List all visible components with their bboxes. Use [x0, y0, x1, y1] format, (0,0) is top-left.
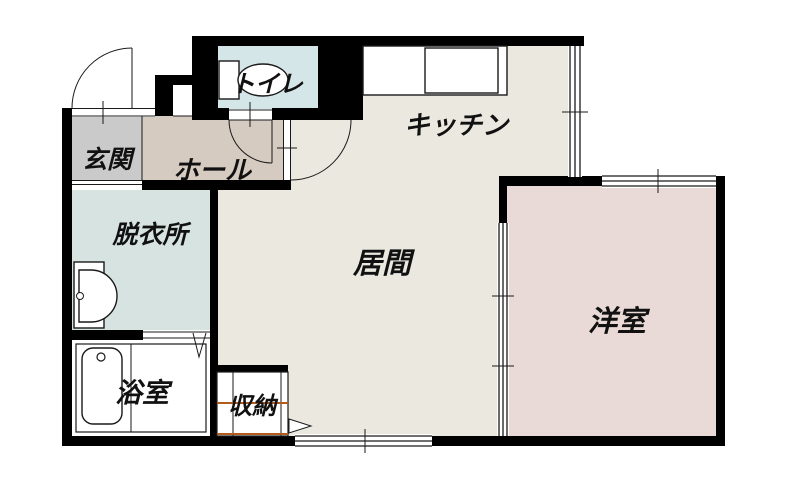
wall-top — [192, 36, 584, 46]
wall-closet-top — [210, 365, 288, 372]
floor-plan-svg: 玄関 ホール トイレ キッチン 脱衣所 居間 洋室 浴室 収納 — [0, 0, 785, 502]
wall-bottom-right — [432, 436, 725, 446]
wall-left — [62, 108, 72, 446]
wall-yoshitsu-top — [499, 176, 602, 186]
room-label-shuno: 収納 — [228, 391, 279, 420]
wall-toilet-bottom-left — [192, 108, 229, 120]
room-label-yokushitsu: 浴室 — [115, 378, 173, 409]
wall-yoshitsu-right — [716, 176, 725, 446]
room-label-datsuijo: 脱衣所 — [111, 220, 191, 249]
room-label-hall: ホール — [173, 156, 253, 186]
room-label-yoshitsu: 洋室 — [588, 304, 651, 338]
floor-plan-page: 玄関 ホール トイレ キッチン 脱衣所 居間 洋室 浴室 収納 — [0, 0, 785, 502]
bathtub-drain — [97, 353, 105, 361]
wall-bath-divider — [62, 330, 143, 340]
washbasin-faucet — [77, 293, 84, 300]
kitchen-counter — [363, 46, 507, 95]
door-swing-arc — [72, 48, 132, 108]
wall-toilet-right-block — [318, 36, 363, 120]
wall-bottom-left — [62, 436, 295, 446]
wall-toilet-left — [192, 36, 218, 120]
door-entrance — [72, 48, 155, 124]
room-label-toilet: トイレ — [231, 69, 304, 98]
room-label-ima: 居間 — [352, 246, 415, 280]
room-label-kitchen: キッチン — [404, 111, 510, 141]
room-label-genkan: 玄関 — [82, 145, 136, 174]
wall-shaft-cap — [155, 75, 192, 85]
pipe-shaft — [173, 85, 192, 116]
opening-genkan-datsuijo — [72, 180, 142, 190]
wall-toilet-bottom-right — [272, 108, 363, 120]
